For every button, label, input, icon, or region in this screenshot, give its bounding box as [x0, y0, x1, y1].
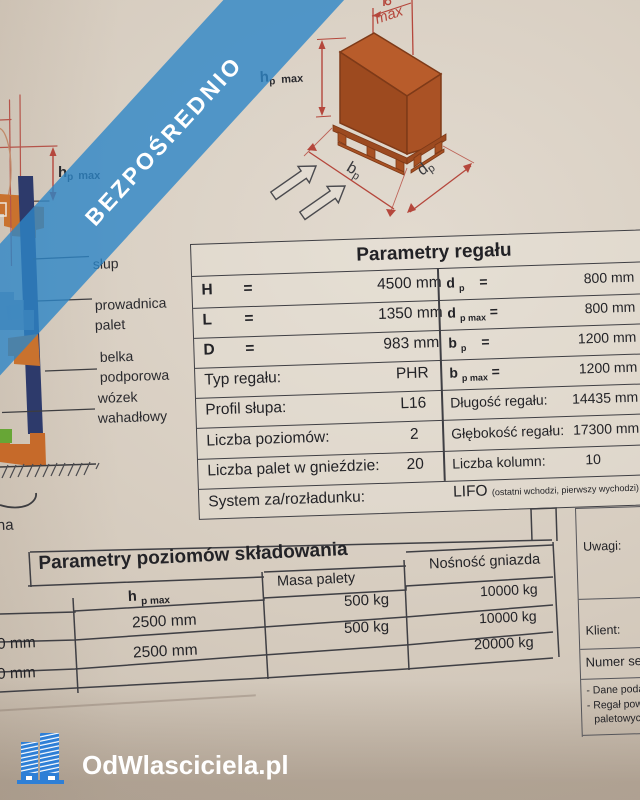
svg-text:max: max — [373, 2, 406, 27]
svg-text:belka: belka — [100, 348, 134, 365]
svg-text:wózek: wózek — [97, 389, 139, 406]
svg-text:podporowa: podporowa — [100, 367, 170, 385]
svg-text:prowadnica: prowadnica — [95, 295, 167, 313]
svg-text:bp: bp — [343, 159, 366, 183]
svg-text:palet: palet — [95, 316, 126, 333]
svg-text:wahadłowy: wahadłowy — [97, 408, 168, 426]
